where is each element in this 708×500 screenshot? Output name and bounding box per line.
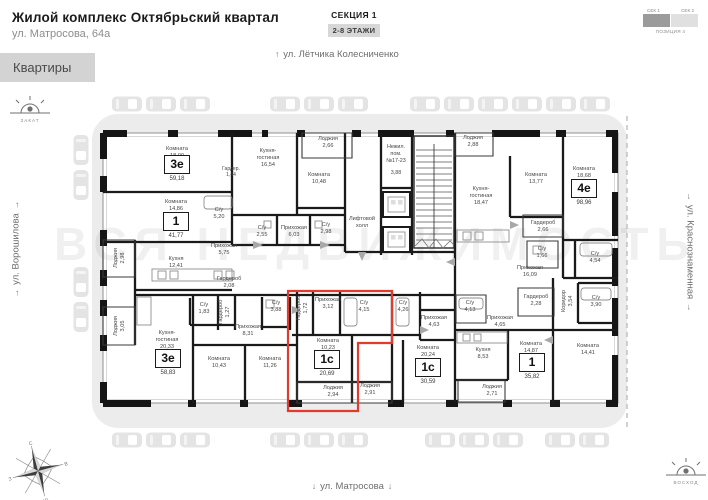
floorplan-canvas: ВСЯ НЕДВИЖИМОСТЬ bbox=[0, 0, 708, 500]
floorplan-page: ВСЯ НЕДВИЖИМОСТЬ bbox=[0, 0, 708, 500]
arrow-icon: → bbox=[686, 303, 696, 312]
section-name: СЕКЦИЯ 1 bbox=[327, 10, 381, 20]
page-title: Жилой комплекс Октябрьский квартал bbox=[12, 10, 279, 25]
scheme-sec2-label: СЕК 2 bbox=[681, 8, 694, 13]
watermark-text: ВСЯ НЕДВИЖИМОСТЬ bbox=[54, 218, 697, 270]
sunrise-label: ВОСХОД bbox=[673, 480, 698, 485]
sunrise-icon: ВОСХОД bbox=[666, 458, 706, 485]
street-label-right: →ул. Краснознаменная→ bbox=[685, 188, 696, 315]
arrow-icon: → bbox=[686, 192, 696, 201]
compass-w-label: З bbox=[8, 476, 12, 483]
tab-apartments[interactable]: Квартиры bbox=[0, 53, 95, 82]
section-floors-badge: 2-8 ЭТАЖИ bbox=[328, 24, 381, 37]
compass-n-label: С bbox=[28, 440, 33, 447]
arrow-down-icon: ↓ bbox=[388, 481, 392, 491]
arrow-down-icon: ↓ bbox=[312, 481, 316, 491]
apartment-label[interactable]: 4е98,96 bbox=[571, 179, 597, 206]
scheme-sec1-box[interactable] bbox=[643, 14, 670, 27]
scheme-position-label: ПОЗИЦИЯ 4 bbox=[643, 29, 698, 34]
apartment-label[interactable]: 3е59,18 bbox=[164, 155, 190, 182]
section-indicator: СЕКЦИЯ 1 2-8 ЭТАЖИ bbox=[327, 10, 381, 38]
street-left-name: ул. Ворошилова bbox=[11, 213, 22, 285]
street-label-left: →ул. Ворошилова→ bbox=[11, 197, 22, 302]
street-label-bottom: ↓ул. Матросова↓ bbox=[308, 481, 396, 492]
apartment-label-selected[interactable]: 1с20,69 bbox=[314, 350, 340, 377]
scheme-sec2-box[interactable] bbox=[671, 14, 698, 27]
scheme-sec1-label: СЕК 1 bbox=[647, 8, 660, 13]
compass-e-label: В bbox=[64, 461, 69, 468]
street-bottom-name: ул. Матросова bbox=[320, 481, 384, 492]
street-label-top: ↑ул. Лётчика Колесниченко bbox=[271, 49, 399, 60]
arrow-icon: → bbox=[11, 201, 21, 210]
page-address: ул. Матросова, 64а bbox=[12, 28, 110, 40]
street-top-name: ул. Лётчика Колесниченко bbox=[283, 49, 399, 60]
arrow-up-icon: ↑ bbox=[275, 49, 279, 59]
arrow-icon: → bbox=[11, 289, 21, 298]
apartment-label[interactable]: 141,77 bbox=[163, 212, 189, 239]
sunset-icon: ЗАКАТ bbox=[9, 96, 51, 123]
section-scheme: СЕК 1 СЕК 2 ПОЗИЦИЯ 4 bbox=[643, 8, 698, 34]
compass-icon: С В Ю З bbox=[1, 433, 78, 500]
apartment-label[interactable]: 135,82 bbox=[519, 353, 545, 380]
sunset-label: ЗАКАТ bbox=[20, 118, 39, 123]
street-right-name: ул. Краснознаменная bbox=[685, 205, 696, 299]
apartment-label[interactable]: 3е58,83 bbox=[155, 349, 181, 376]
apartment-label[interactable]: 1с30,59 bbox=[415, 358, 441, 385]
